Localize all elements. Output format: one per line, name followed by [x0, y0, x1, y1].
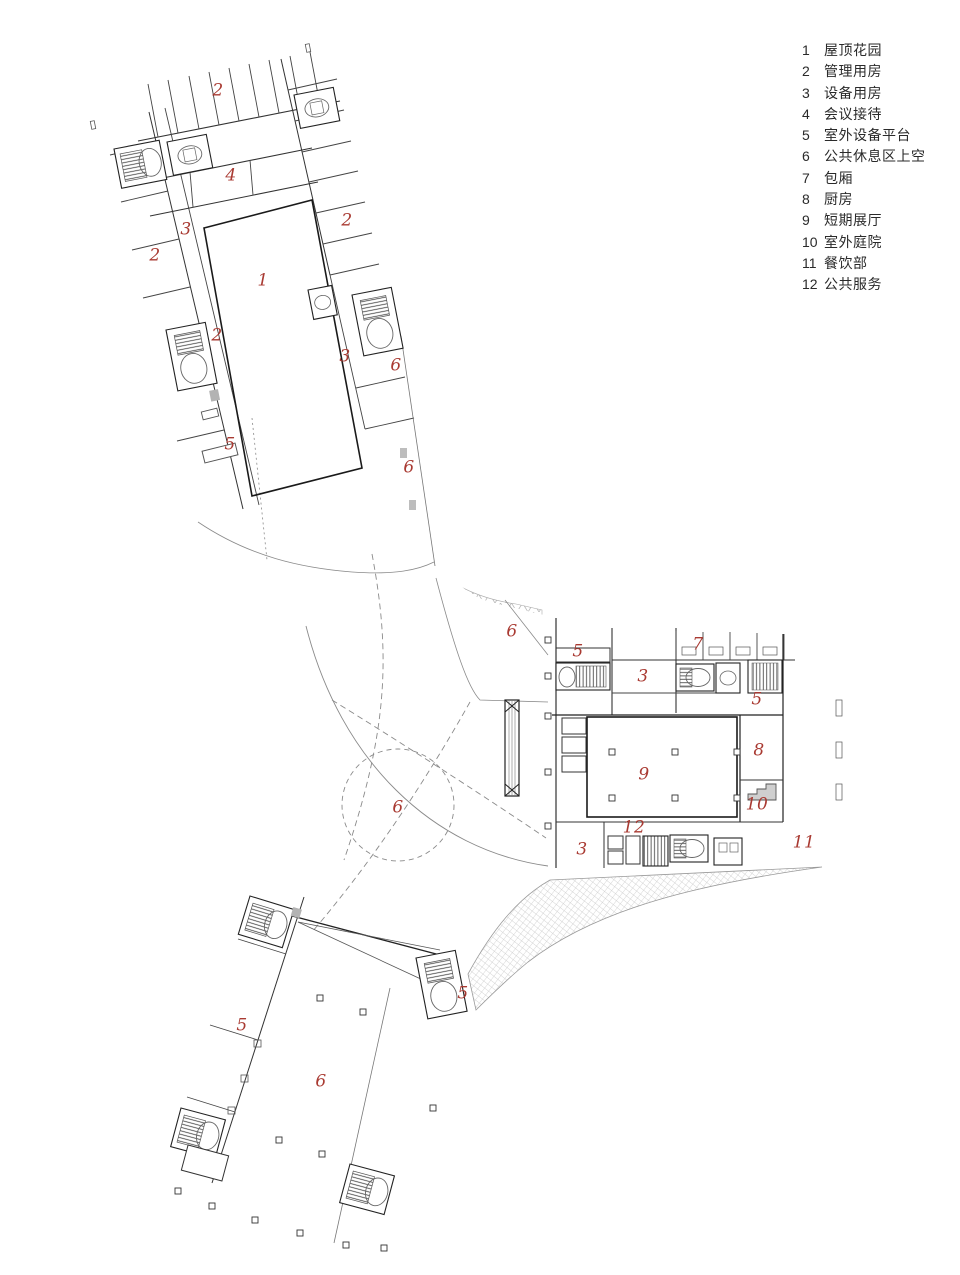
legend-item-9: 9短期展厅: [802, 210, 926, 231]
legend-item-label: 餐饮部: [824, 253, 868, 274]
legend-item-number: 7: [802, 168, 824, 189]
legend-item-11: 11餐饮部: [802, 253, 926, 274]
legend-item-1: 1屋顶花园: [802, 40, 926, 61]
legend-item-number: 8: [802, 189, 824, 210]
legend-item-number: 2: [802, 61, 824, 82]
legend-item-label: 设备用房: [824, 83, 882, 104]
legend-item-number: 11: [802, 253, 824, 274]
legend-item-number: 1: [802, 40, 824, 61]
legend-item-8: 8厨房: [802, 189, 926, 210]
legend-item-number: 9: [802, 210, 824, 231]
floorplan-page: 24322123656657358910612311556 1屋顶花园2管理用房…: [0, 0, 960, 1275]
legend-item-label: 室外庭院: [824, 232, 882, 253]
legend-item-label: 屋顶花园: [824, 40, 882, 61]
legend-item-label: 管理用房: [824, 61, 882, 82]
legend-item-number: 5: [802, 125, 824, 146]
legend-item-2: 2管理用房: [802, 61, 926, 82]
legend-item-label: 室外设备平台: [824, 125, 911, 146]
legend-item-10: 10室外庭院: [802, 232, 926, 253]
legend-item-5: 5室外设备平台: [802, 125, 926, 146]
legend-item-label: 公共服务: [824, 274, 882, 295]
legend-item-label: 公共休息区上空: [824, 146, 926, 167]
legend-item-label: 短期展厅: [824, 210, 882, 231]
legend-item-number: 10: [802, 232, 824, 253]
legend: 1屋顶花园2管理用房3设备用房4会议接待5室外设备平台6公共休息区上空7包厢8厨…: [802, 40, 926, 296]
legend-item-number: 4: [802, 104, 824, 125]
legend-item-label: 会议接待: [824, 104, 882, 125]
legend-item-number: 6: [802, 146, 824, 167]
legend-item-label: 包厢: [824, 168, 853, 189]
void-escalator: [505, 700, 519, 796]
legend-item-number: 3: [802, 83, 824, 104]
legend-item-4: 4会议接待: [802, 104, 926, 125]
legend-item-number: 12: [802, 274, 824, 295]
legend-item-12: 12公共服务: [802, 274, 926, 295]
legend-item-6: 6公共休息区上空: [802, 146, 926, 167]
strip12-cores: [608, 835, 742, 866]
legend-item-3: 3设备用房: [802, 83, 926, 104]
legend-item-7: 7包厢: [802, 168, 926, 189]
legend-item-label: 厨房: [824, 189, 853, 210]
legend-list: 1屋顶花园2管理用房3设备用房4会议接待5室外设备平台6公共休息区上空7包厢8厨…: [802, 40, 926, 296]
